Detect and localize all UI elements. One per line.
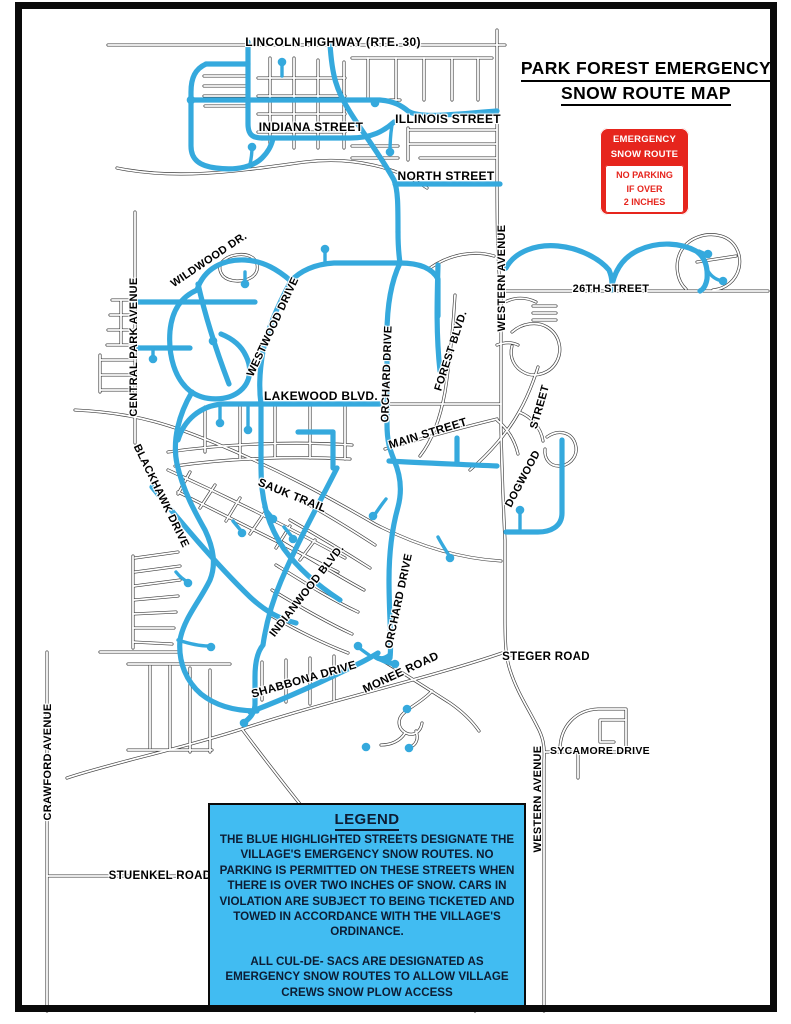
- street-label-crawford-avenue: CRAWFORD AVENUE: [42, 704, 54, 821]
- legend-box: LEGEND THE BLUE HIGHLIGHTED STREETS DESI…: [208, 803, 526, 1009]
- sign-header: EMERGENCY SNOW ROUTE: [600, 128, 689, 162]
- legend-paragraph-2: ALL CUL-DE- SACS ARE DESIGNATED AS EMERG…: [218, 954, 516, 1000]
- legend-heading: LEGEND: [218, 811, 516, 828]
- sign-header-line2: SNOW ROUTE: [600, 148, 689, 163]
- snow-route-map-page: LINCOLN HIGHWAY (RTE. 30) INDIANA STREET…: [0, 0, 791, 1024]
- street-label-26th-street: 26TH STREET: [573, 283, 650, 295]
- street-label-sycamore-drive: SYCAMORE DRIVE: [550, 745, 650, 757]
- legend-paragraph-1: THE BLUE HIGHLIGHTED STREETS DESIGNATE T…: [218, 832, 516, 940]
- street-label-north-street: NORTH STREET: [398, 169, 495, 183]
- street-label-central-park-avenue: CENTRAL PARK AVENUE: [128, 277, 140, 416]
- street-label-lakewood-blvd: LAKEWOOD BLVD.: [264, 389, 378, 403]
- street-label-steger-road: STEGER ROAD: [502, 651, 590, 663]
- emergency-snow-route-sign: EMERGENCY SNOW ROUTE NO PARKING IF OVER …: [600, 128, 689, 215]
- sign-header-line1: EMERGENCY: [600, 133, 689, 148]
- street-label-illinois-street: ILLINOIS STREET: [395, 112, 501, 126]
- sign-no-parking-line3: 2 INCHES: [605, 196, 684, 210]
- map-title-line1: PARK FOREST EMERGENCY: [521, 60, 771, 82]
- sign-no-parking-panel: NO PARKING IF OVER 2 INCHES: [605, 165, 684, 213]
- street-label-lincoln-highway: LINCOLN HIGHWAY (RTE. 30): [245, 35, 421, 49]
- street-label-western-avenue-north: WESTERN AVENUE: [496, 225, 508, 332]
- street-label-indiana-street: INDIANA STREET: [259, 120, 363, 134]
- map-title-line2: SNOW ROUTE MAP: [561, 85, 731, 107]
- sign-no-parking-line1: NO PARKING: [605, 169, 684, 183]
- street-label-western-avenue-south: WESTERN AVENUE: [532, 746, 544, 853]
- map-title: PARK FOREST EMERGENCY SNOW ROUTE MAP: [512, 60, 780, 109]
- sign-no-parking-line2: IF OVER: [605, 183, 684, 197]
- street-label-stuenkel-road: STUENKEL ROAD: [109, 870, 212, 882]
